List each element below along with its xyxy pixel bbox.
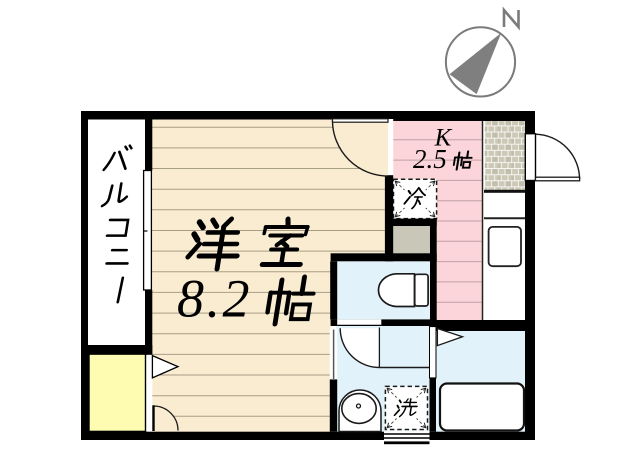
- svg-text:2.5: 2.5: [413, 144, 447, 174]
- svg-text:8.2: 8.2: [177, 269, 252, 329]
